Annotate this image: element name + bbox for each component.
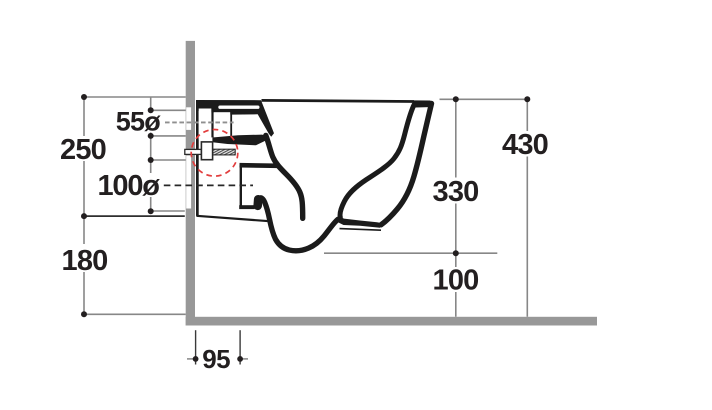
- svg-text:180: 180: [62, 245, 108, 277]
- svg-text:100ø: 100ø: [98, 170, 161, 202]
- svg-text:95: 95: [202, 344, 230, 374]
- svg-text:330: 330: [433, 176, 479, 208]
- svg-text:250: 250: [60, 134, 106, 166]
- svg-text:100: 100: [433, 265, 479, 297]
- svg-text:430: 430: [502, 129, 548, 161]
- svg-text:55ø: 55ø: [116, 106, 161, 136]
